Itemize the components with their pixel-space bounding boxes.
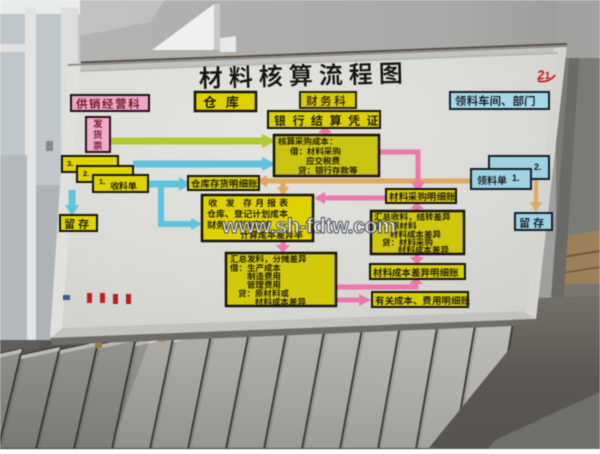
svg-text:2.: 2. (83, 169, 89, 178)
svg-text:贷：银行存款等: 贷：银行存款等 (297, 165, 358, 177)
svg-text:供销经营科: 供销经营科 (76, 96, 141, 112)
svg-text:材料成本差异明细账: 材料成本差异明细账 (373, 265, 459, 279)
svg-text:材料核算流程图: 材料核算流程图 (198, 54, 409, 94)
svg-text:仓库存货明细账: 仓库存货明细账 (190, 176, 258, 190)
svg-text:财务科: 财务科 (306, 93, 348, 109)
svg-text:留存: 留存 (519, 215, 547, 231)
svg-text:1.: 1. (512, 173, 520, 183)
svg-text:有关成本、费用明细账: 有关成本、费用明细账 (375, 293, 471, 307)
svg-text:材料采购明细账: 材料采购明细账 (389, 189, 456, 203)
svg-text:1.: 1. (99, 177, 105, 186)
svg-text:材料成本差异: 材料成本差异 (398, 244, 449, 256)
svg-text:3.: 3. (67, 159, 73, 168)
svg-text:票: 票 (93, 138, 103, 152)
svg-text:仓库: 仓库 (203, 91, 248, 111)
svg-text:www.sh-fdtw.com: www.sh-fdtw.com (221, 214, 396, 238)
svg-text:2.: 2. (534, 162, 542, 172)
svg-text:领料单: 领料单 (476, 172, 507, 187)
svg-text:收料单: 收料单 (110, 179, 137, 192)
svg-text:材料成本差异: 材料成本差异 (255, 296, 306, 308)
svg-text:银行结算凭证: 银行结算凭证 (274, 112, 385, 129)
svg-text:留存: 留存 (64, 216, 92, 232)
svg-text:领料车间、部门: 领料车间、部门 (455, 93, 536, 109)
